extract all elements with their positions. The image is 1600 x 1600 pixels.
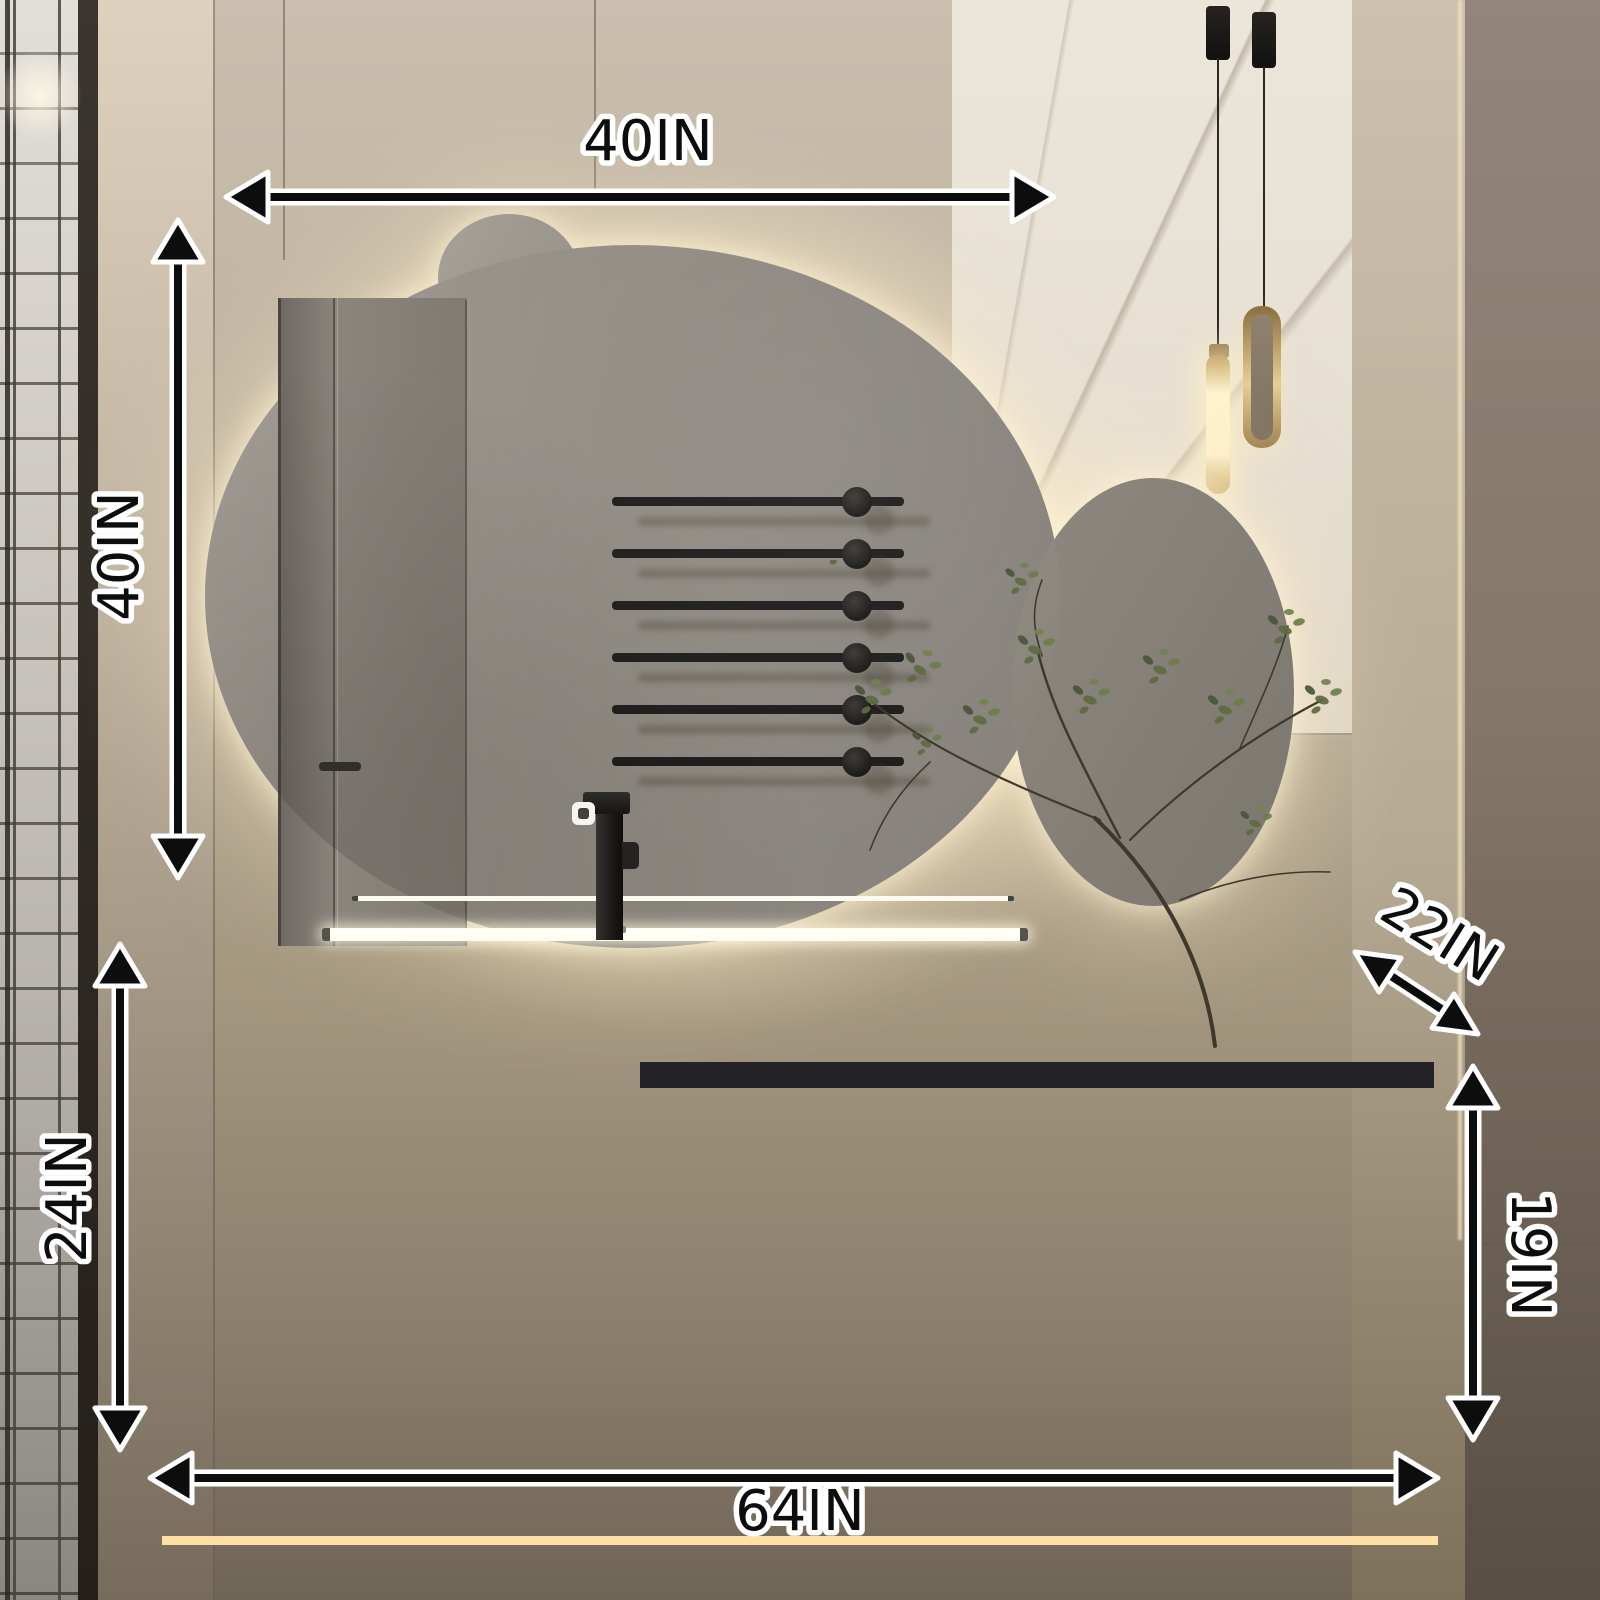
dimension-annotations: 40IN 40IN 22IN — [0, 0, 1600, 1600]
arrowhead-down-icon — [1448, 1398, 1498, 1440]
dim-left-cabinet-height: 24IN — [35, 944, 145, 1450]
bathroom-vanity-product-photo: 40IN 40IN 22IN — [0, 0, 1600, 1600]
dim-cabinet-width: 64IN — [150, 1453, 1438, 1544]
arrowhead-right-icon — [1396, 1453, 1438, 1503]
arrowhead-up-icon — [1448, 1066, 1498, 1108]
dim-mirror-width: 40IN — [226, 109, 1054, 222]
dim-label-right-cabinet-height: 19IN — [1499, 1191, 1562, 1316]
arrowhead-left-icon — [226, 172, 268, 222]
arrowhead-up-icon — [95, 944, 145, 986]
dim-label-mirror-height: 40IN — [87, 491, 152, 621]
dim-label-cabinet-width: 64IN — [735, 1479, 865, 1544]
dim-label-left-cabinet-height: 24IN — [35, 1133, 100, 1263]
arrowhead-down-icon — [95, 1408, 145, 1450]
dim-counter-depth: 22IN — [1355, 874, 1510, 1034]
arrowhead-down-icon — [153, 836, 203, 878]
dim-label-mirror-width: 40IN — [583, 109, 713, 174]
arrowhead-up-icon — [153, 220, 203, 262]
dim-mirror-height: 40IN — [87, 220, 203, 878]
dim-right-cabinet-height: 19IN — [1448, 1066, 1562, 1440]
arrowhead-right-icon — [1012, 172, 1054, 222]
arrowhead-left-icon — [150, 1453, 192, 1503]
